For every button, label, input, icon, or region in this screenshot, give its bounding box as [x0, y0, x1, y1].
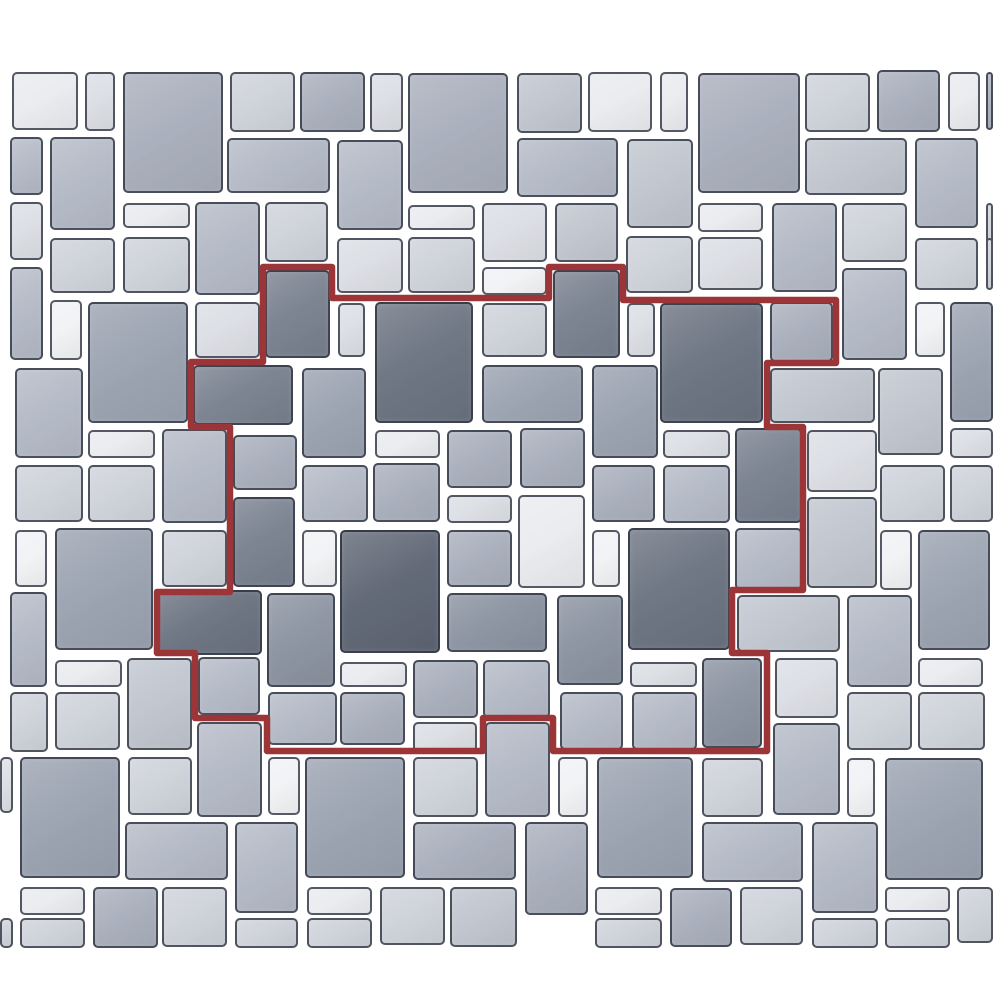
- paver-tile: [986, 238, 993, 290]
- paver-tile: [770, 368, 875, 423]
- paver-tile: [592, 465, 655, 522]
- paver-pattern-canvas: [0, 0, 1000, 1000]
- paver-tile: [162, 887, 227, 947]
- paver-tile: [267, 593, 335, 687]
- paver-tile: [10, 267, 43, 360]
- paver-tile: [483, 660, 550, 718]
- paver-tile: [307, 887, 372, 915]
- paver-tile: [162, 429, 227, 523]
- paver-tile: [805, 73, 870, 132]
- paver-tile: [518, 495, 585, 588]
- paver-tile: [10, 592, 47, 687]
- paver-tile: [340, 662, 407, 687]
- paver-tile: [123, 72, 223, 193]
- paver-tile: [20, 918, 85, 948]
- paver-tile: [193, 365, 293, 425]
- paver-tile: [482, 365, 583, 423]
- paver-tile: [50, 137, 115, 230]
- paver-tile: [595, 918, 662, 948]
- paver-tile: [235, 822, 298, 913]
- paver-tile: [380, 887, 445, 945]
- paver-tile: [702, 758, 763, 817]
- paver-tile: [698, 73, 800, 193]
- paver-tile: [447, 430, 512, 488]
- paver-tile: [55, 528, 153, 650]
- paver-tile: [950, 465, 993, 522]
- paver-tile: [128, 757, 192, 815]
- paver-tile: [950, 302, 993, 422]
- paver-tile: [772, 203, 837, 292]
- paver-tile: [558, 757, 588, 817]
- paver-tile: [413, 722, 477, 752]
- paver-tile: [770, 302, 833, 362]
- paver-tile: [775, 658, 838, 718]
- paver-tile: [842, 268, 907, 360]
- paver-tile: [880, 465, 945, 522]
- paver-tile: [735, 428, 802, 523]
- paver-tile: [233, 497, 295, 587]
- paver-tile: [627, 303, 655, 357]
- paver-tile: [408, 73, 508, 193]
- paver-tile: [482, 267, 547, 295]
- paver-tile: [560, 692, 623, 750]
- paver-tile: [740, 887, 803, 945]
- paver-tile: [337, 140, 403, 230]
- paver-tile: [85, 72, 115, 131]
- paver-tile: [125, 822, 228, 880]
- paver-tile: [627, 139, 693, 228]
- paver-tile: [305, 757, 405, 878]
- paver-tile: [12, 72, 78, 130]
- paver-tile: [698, 237, 763, 290]
- paver-tile: [880, 530, 912, 590]
- paver-tile: [885, 887, 950, 912]
- paver-tile: [93, 887, 158, 948]
- paver-tile: [626, 236, 693, 293]
- paver-tile: [227, 138, 330, 193]
- paver-tile: [413, 822, 516, 880]
- paver-tile: [555, 203, 618, 262]
- paver-tile: [878, 368, 943, 455]
- paver-tile: [15, 530, 47, 587]
- paver-tile: [413, 757, 478, 817]
- paver-tile: [20, 757, 120, 878]
- paver-tile: [847, 692, 912, 750]
- paver-tile: [88, 465, 155, 522]
- paver-tile: [918, 658, 983, 687]
- paver-tile: [517, 73, 582, 133]
- paver-tile: [482, 203, 547, 262]
- paver-tile: [885, 918, 950, 948]
- paver-tile: [630, 662, 697, 687]
- paver-tile: [413, 660, 478, 718]
- paver-tile: [230, 72, 295, 132]
- paver-tile: [877, 70, 940, 132]
- paver-tile: [20, 887, 85, 915]
- paver-tile: [375, 430, 440, 458]
- paver-tile: [195, 202, 260, 295]
- paver-tile: [447, 593, 547, 652]
- paver-tile: [520, 428, 585, 488]
- paver-tile: [485, 722, 550, 817]
- paver-tile: [0, 918, 13, 948]
- paver-tile: [915, 302, 945, 357]
- paver-tile: [268, 757, 300, 815]
- paver-tile: [55, 692, 120, 750]
- paver-tile: [450, 887, 517, 947]
- paver-tile: [915, 138, 978, 228]
- paver-tile: [918, 692, 985, 750]
- paver-tile: [307, 918, 372, 948]
- paver-tile: [842, 203, 907, 262]
- paver-tile: [0, 757, 13, 813]
- paver-tile: [447, 530, 512, 587]
- paver-tile: [197, 722, 262, 817]
- paver-tile: [660, 303, 763, 423]
- paver-tile: [805, 138, 907, 195]
- paver-tile: [300, 72, 365, 132]
- paver-tile: [268, 692, 337, 745]
- paver-tile: [50, 238, 115, 293]
- paver-tile: [88, 302, 188, 423]
- paver-tile: [950, 428, 993, 458]
- paver-tile: [525, 822, 588, 915]
- paver-tile: [235, 918, 298, 948]
- paver-tile: [127, 658, 192, 750]
- paver-tile: [123, 203, 190, 228]
- paver-tile: [557, 595, 623, 685]
- paver-tile: [847, 758, 875, 817]
- paver-tile: [265, 202, 328, 262]
- paver-tile: [597, 757, 693, 878]
- paver-tile: [812, 822, 878, 913]
- paver-tile: [807, 497, 877, 588]
- paver-tile: [773, 723, 840, 815]
- paver-tile: [885, 758, 983, 880]
- paver-tile: [373, 463, 440, 522]
- paver-tile: [162, 530, 227, 587]
- paver-tile: [302, 530, 337, 587]
- paver-tile: [337, 238, 403, 293]
- paver-tile: [10, 202, 43, 260]
- paver-tile: [375, 302, 473, 423]
- paver-tile: [408, 205, 475, 230]
- paver-tile: [663, 430, 730, 458]
- paver-tile: [915, 238, 978, 290]
- paver-tile: [265, 270, 330, 358]
- paver-tile: [370, 73, 403, 132]
- paver-tile: [482, 303, 547, 357]
- paver-tile: [628, 528, 730, 650]
- paver-tile: [338, 303, 365, 357]
- paver-tile: [198, 657, 260, 715]
- paver-tile: [986, 72, 993, 130]
- paver-tile: [918, 530, 990, 650]
- paver-tile: [15, 465, 83, 522]
- paver-tile: [588, 72, 652, 132]
- paver-tile: [10, 692, 48, 752]
- paver-tile: [592, 530, 620, 587]
- paver-tile: [592, 365, 658, 458]
- paver-tile: [847, 595, 912, 687]
- paver-tile: [302, 465, 368, 522]
- paver-tile: [670, 888, 732, 947]
- paver-tile: [88, 430, 155, 458]
- paver-tile: [157, 590, 262, 655]
- paver-tile: [948, 72, 980, 131]
- paver-tile: [408, 237, 475, 293]
- paver-tile: [233, 435, 297, 490]
- paver-tile: [10, 137, 43, 195]
- paver-tile: [340, 530, 440, 653]
- paver-tile: [957, 887, 993, 943]
- paver-tile: [812, 918, 878, 948]
- paver-tile: [517, 138, 618, 197]
- paver-tile: [702, 822, 803, 882]
- paver-tile: [735, 528, 802, 590]
- paver-tile: [195, 302, 260, 358]
- paver-tile: [123, 237, 190, 293]
- paver-tile: [737, 595, 840, 652]
- paver-tile: [50, 300, 82, 360]
- paver-tile: [807, 430, 877, 492]
- paver-tile: [663, 465, 730, 523]
- paver-tile: [553, 270, 620, 358]
- paver-tile: [595, 887, 662, 915]
- paver-tile: [447, 495, 512, 523]
- paver-tile: [340, 692, 405, 745]
- paver-tile: [698, 203, 763, 232]
- paver-tile: [55, 660, 122, 687]
- paver-tile: [660, 72, 688, 132]
- paver-tile: [702, 658, 762, 748]
- paver-tile: [632, 692, 697, 750]
- paver-tile: [15, 368, 83, 458]
- paver-tile: [302, 368, 366, 458]
